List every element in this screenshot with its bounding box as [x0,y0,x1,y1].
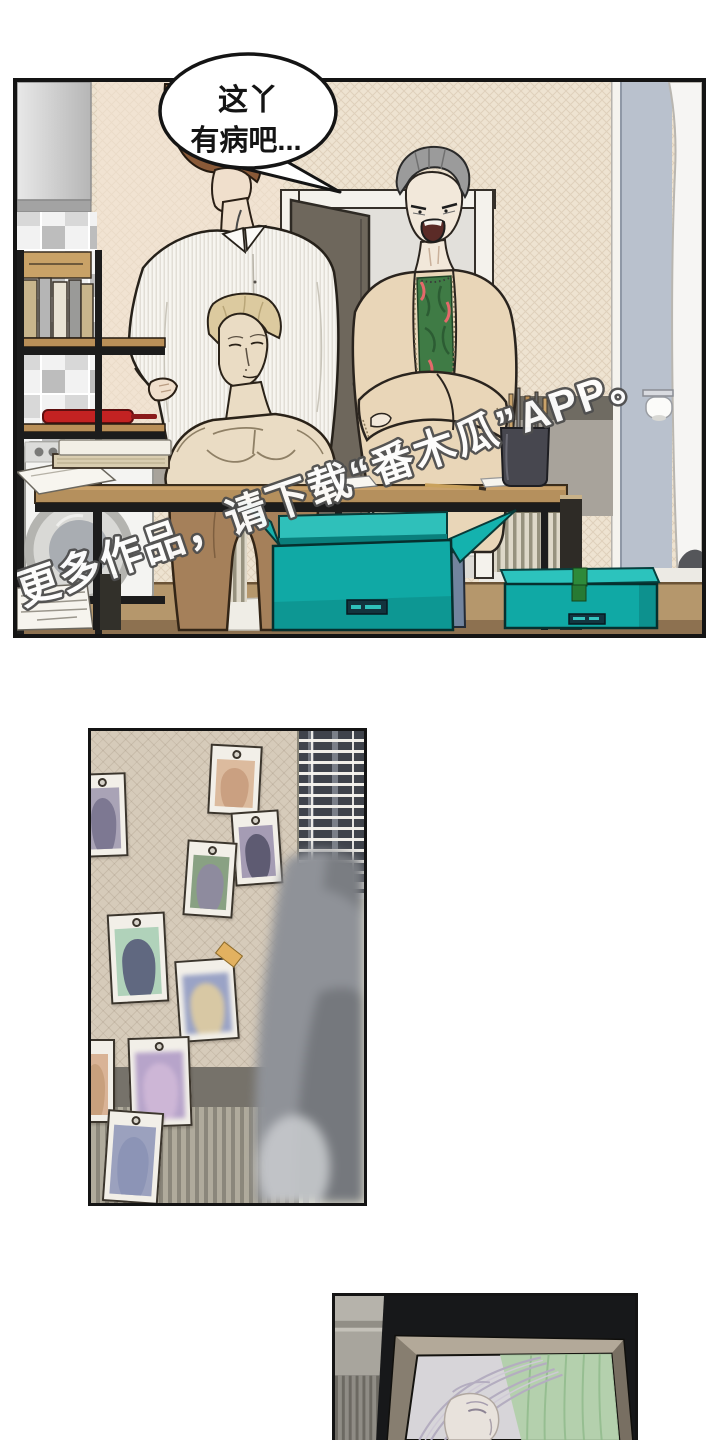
speech-bubble-text-line1: 这丫 [218,83,278,117]
comic-panel-3 [332,1293,638,1440]
file-binders [23,278,93,338]
file-box [21,252,91,278]
picture-frame [388,1336,632,1440]
blurred-foreground-figure [91,731,364,1203]
speech-bubble-text-line2: 有病吧... [190,124,301,157]
comic-panel-2 [88,728,367,1206]
right-wall [611,82,672,576]
panel3-artwork [335,1296,635,1440]
kitchen-hood [17,82,91,212]
speech-bubble: 这丫 有病吧... [150,44,365,206]
